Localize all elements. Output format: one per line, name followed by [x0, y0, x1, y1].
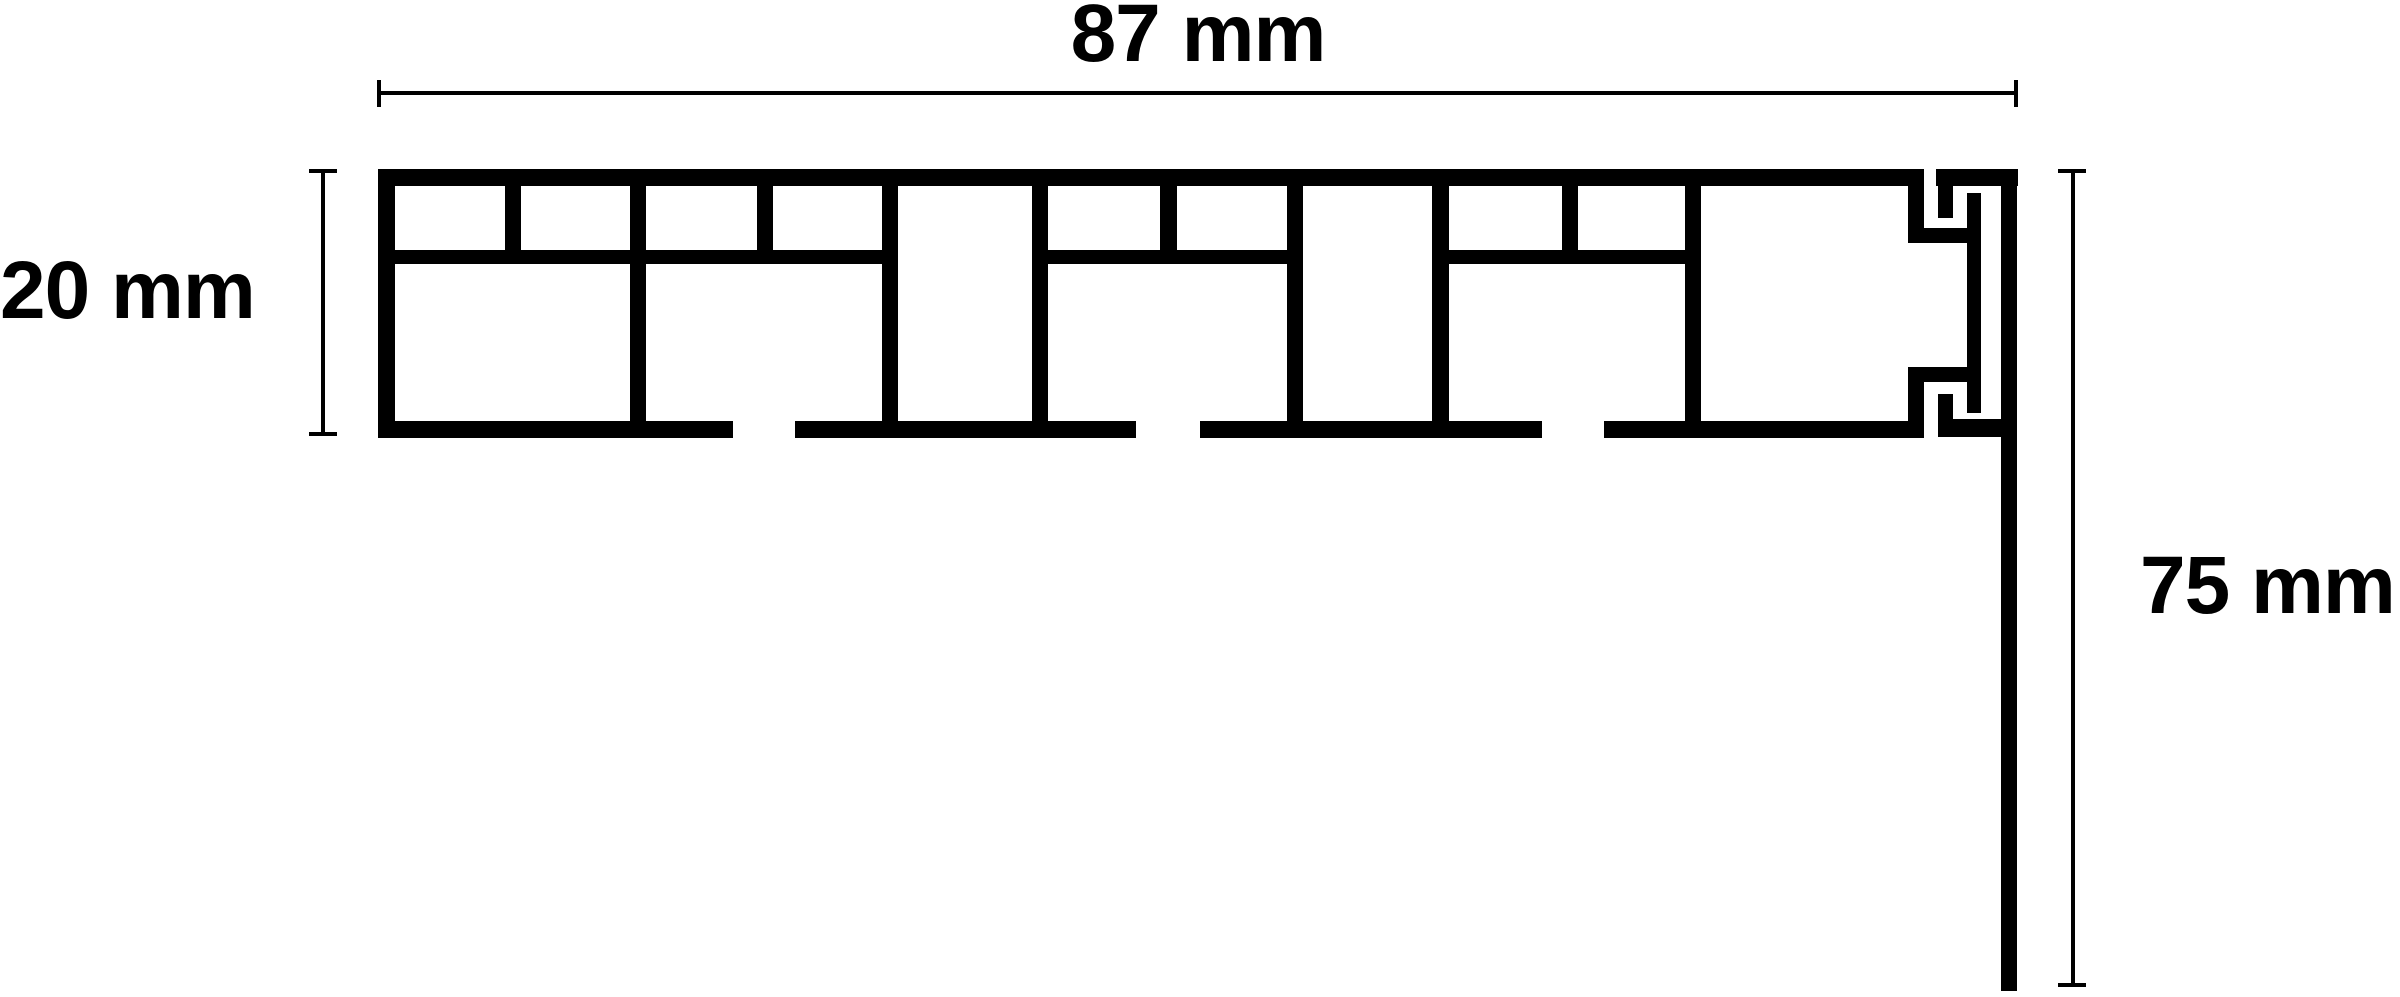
profile-wall-segment [1604, 421, 1924, 438]
profile-wall-segment [882, 176, 898, 436]
profile-wall-segment [1908, 228, 1972, 243]
drop-dimension-line [2071, 171, 2075, 987]
width-dimension-line [379, 91, 2017, 95]
profile-wall-segment [1562, 180, 1578, 264]
width-dimension-tick-right [2014, 80, 2018, 107]
profile-wall-segment [757, 180, 773, 264]
width-dimension-label: 87 mm [379, 0, 2017, 75]
profile-wall-segment [795, 421, 1136, 438]
profile-wall-segment [1287, 176, 1303, 436]
profile-wall-segment [1160, 180, 1177, 264]
profile-wall-segment [1967, 193, 1981, 413]
profile-wall-segment [1938, 419, 2003, 437]
profile-wall-segment [1908, 367, 1968, 382]
profile-wall-segment [378, 421, 733, 438]
profile-wall-segment [1200, 421, 1542, 438]
height-dimension-label: 20 mm [0, 250, 300, 332]
profile-wall-segment [1032, 176, 1048, 436]
width-dimension-tick-left [377, 80, 381, 107]
profile-wall-segment [1432, 176, 1449, 436]
drop-dimension-tick-bottom [2058, 983, 2086, 987]
profile-wall-segment [505, 180, 521, 264]
height-dimension-tick-top [309, 169, 337, 173]
profile-diagram: 87 mm 20 mm 75 mm [0, 0, 2400, 997]
drop-dimension-label: 75 mm [2140, 545, 2400, 627]
height-dimension-line [321, 171, 325, 435]
height-dimension-tick-bottom [309, 432, 337, 436]
profile-wall-segment [2001, 169, 2017, 991]
profile-wall-segment [630, 176, 646, 436]
profile-wall-segment [1938, 183, 1953, 218]
profile-wall-segment [1685, 176, 1701, 436]
profile-wall-segment [378, 169, 395, 438]
drop-dimension-tick-top [2058, 169, 2086, 173]
